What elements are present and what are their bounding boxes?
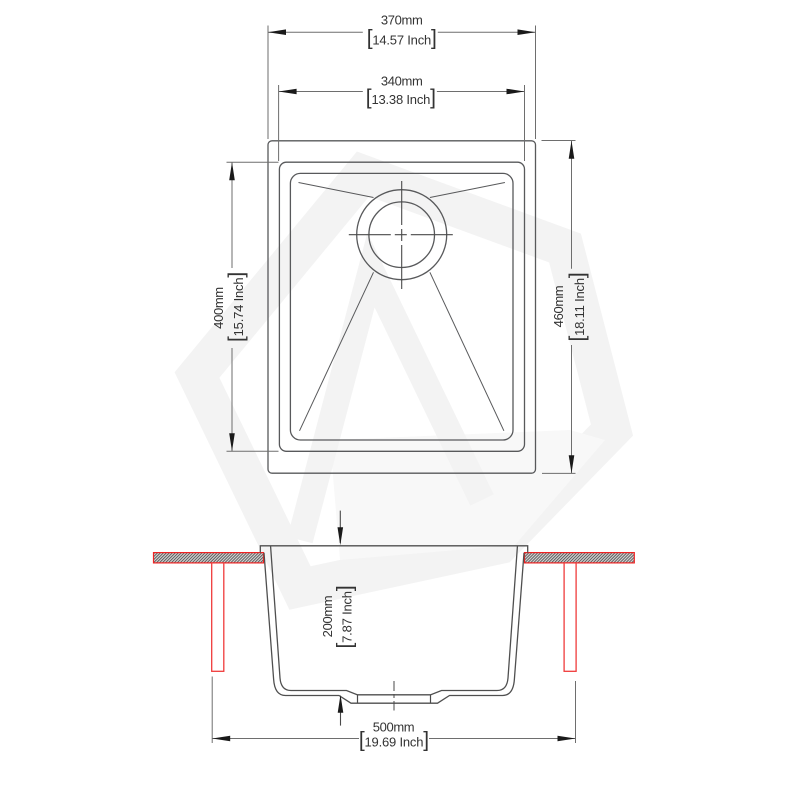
svg-text:[13.38 Inch]: [13.38 Inch] [366,86,436,109]
svg-text:340mm: 340mm [381,74,423,89]
svg-text:500mm: 500mm [373,720,415,735]
svg-text:370mm: 370mm [381,13,423,28]
svg-text:[14.57 Inch]: [14.57 Inch] [367,27,437,50]
svg-text:400mm: 400mm [211,287,226,329]
svg-text:460mm: 460mm [551,286,566,328]
svg-text:200mm: 200mm [320,596,335,638]
